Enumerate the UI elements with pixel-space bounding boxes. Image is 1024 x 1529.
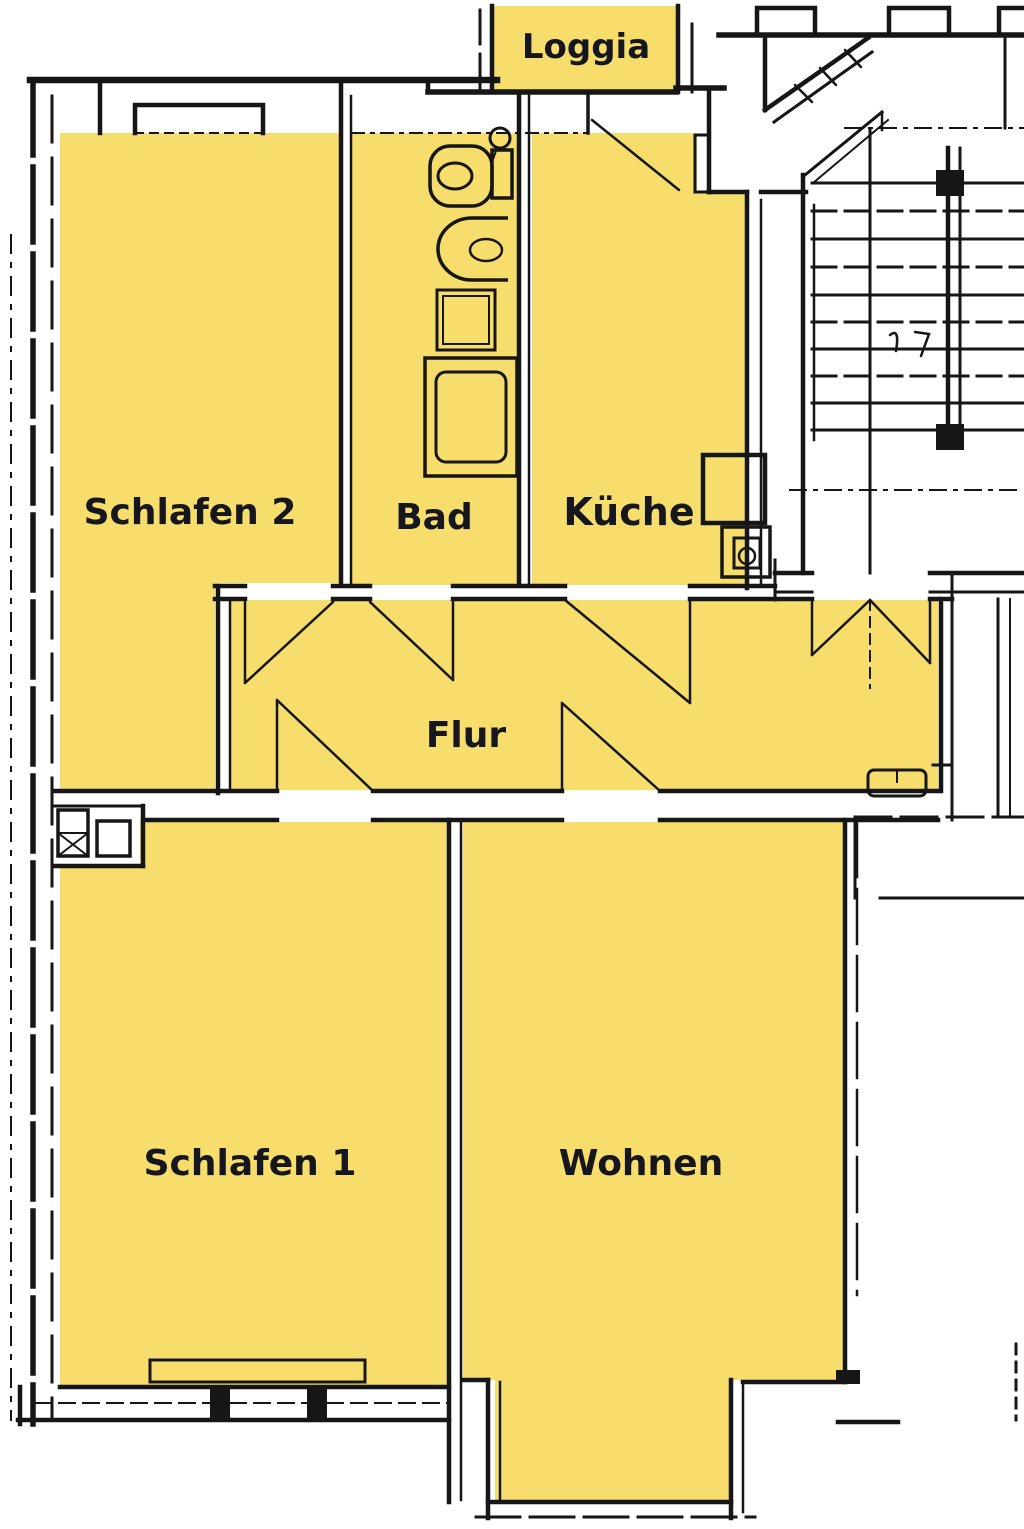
flur-bottom-wall [55,791,938,820]
shaft-box-2 [97,821,130,856]
stair-treads [812,183,1024,430]
window-post [210,1387,230,1420]
room-label-wohnen: Wohnen [559,1143,723,1184]
stair-newel-bottom [936,424,964,450]
shaft-boxes [55,806,143,866]
flur-top-wall [215,586,952,599]
window-post [307,1387,327,1420]
room-label-schlafen-2: Schlafen 2 [84,492,297,533]
stair-step-marks [890,332,929,356]
room-label-flur: Flur [426,715,507,756]
room-label-schlafen-1: Schlafen 1 [144,1143,357,1184]
room-area-schlafen-1 [60,822,447,1387]
room-label-kueche: Küche [563,490,694,534]
room-label-bad: Bad [395,497,473,538]
floor-plan: Loggia Schlafen 2 Bad Küche Flur Schlafe… [0,0,1024,1529]
floor-plan-svg: Loggia Schlafen 2 Bad Küche Flur Schlafe… [0,0,1024,1529]
room-area-flur [231,600,938,790]
room-label-loggia: Loggia [522,27,650,67]
stair-newel-top [936,170,964,196]
